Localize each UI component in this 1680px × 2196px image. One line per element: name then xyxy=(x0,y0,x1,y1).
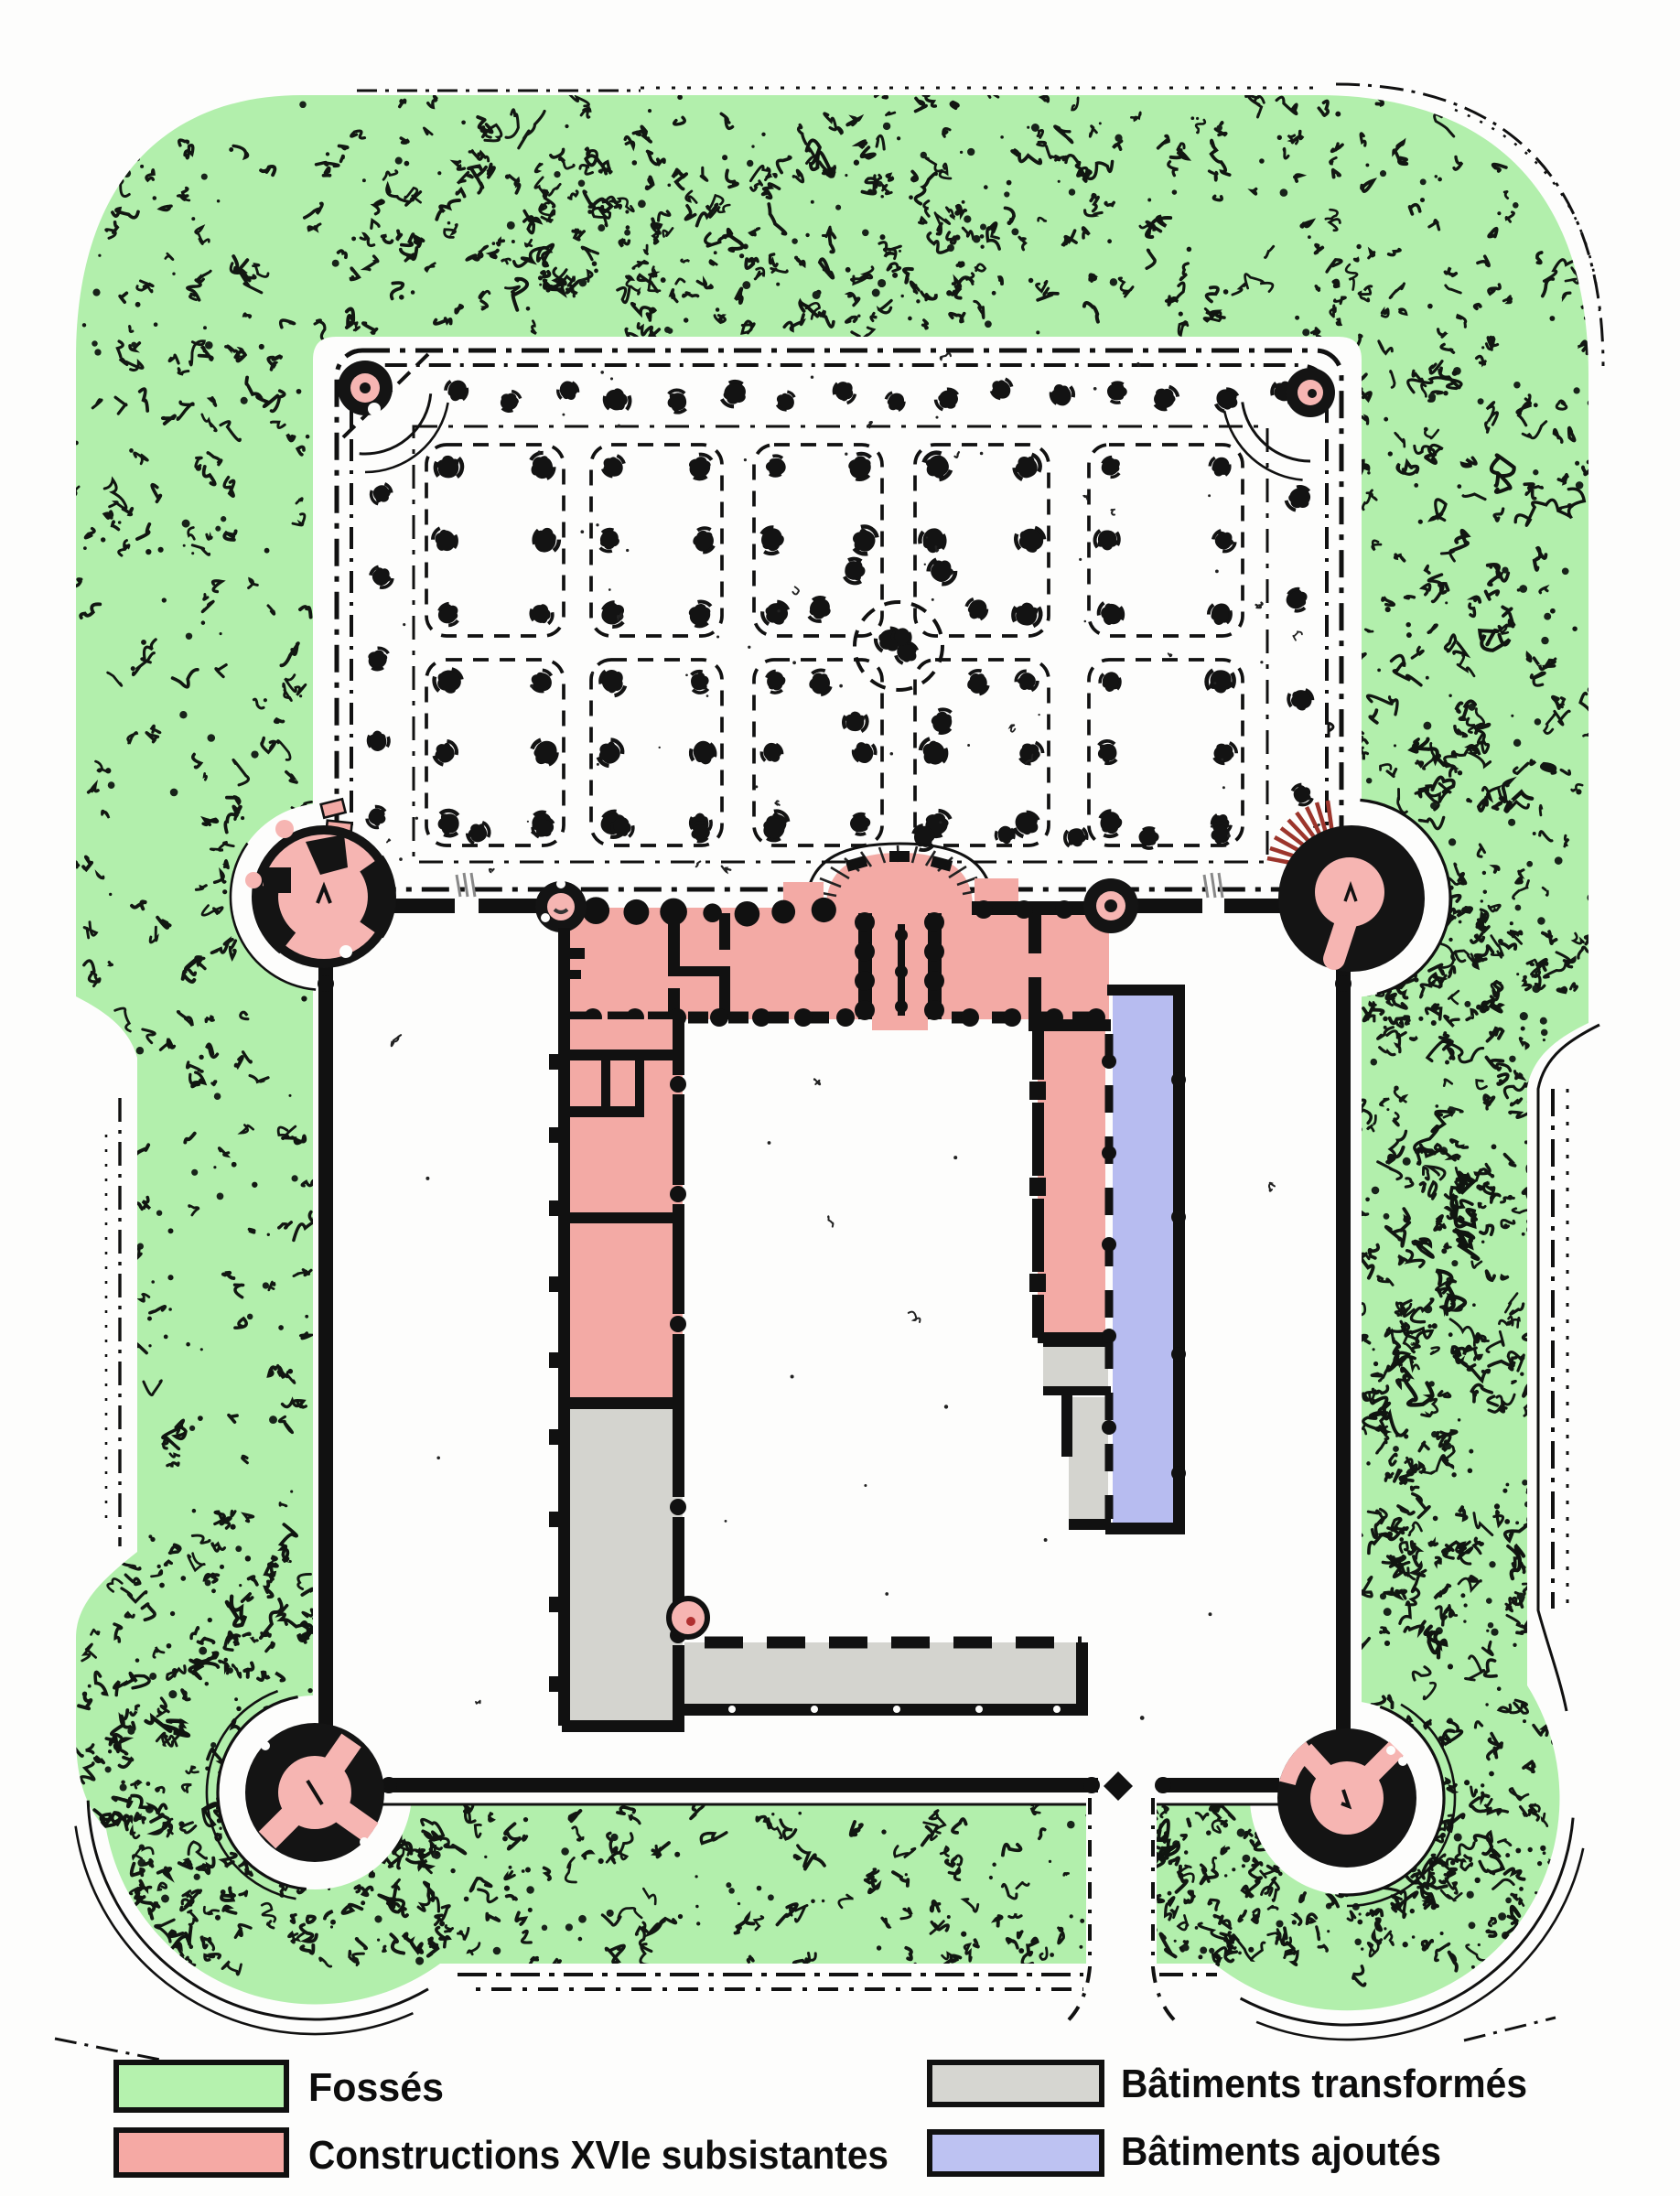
svg-text:Bâtiments ajoutés: Bâtiments ajoutés xyxy=(1121,2129,1441,2174)
svg-text:Bâtiments transformés: Bâtiments transformés xyxy=(1121,2061,1527,2106)
svg-text:Constructions XVIe subsistante: Constructions XVIe subsistantes xyxy=(308,2133,888,2178)
svg-text:Fossés: Fossés xyxy=(308,2065,444,2110)
